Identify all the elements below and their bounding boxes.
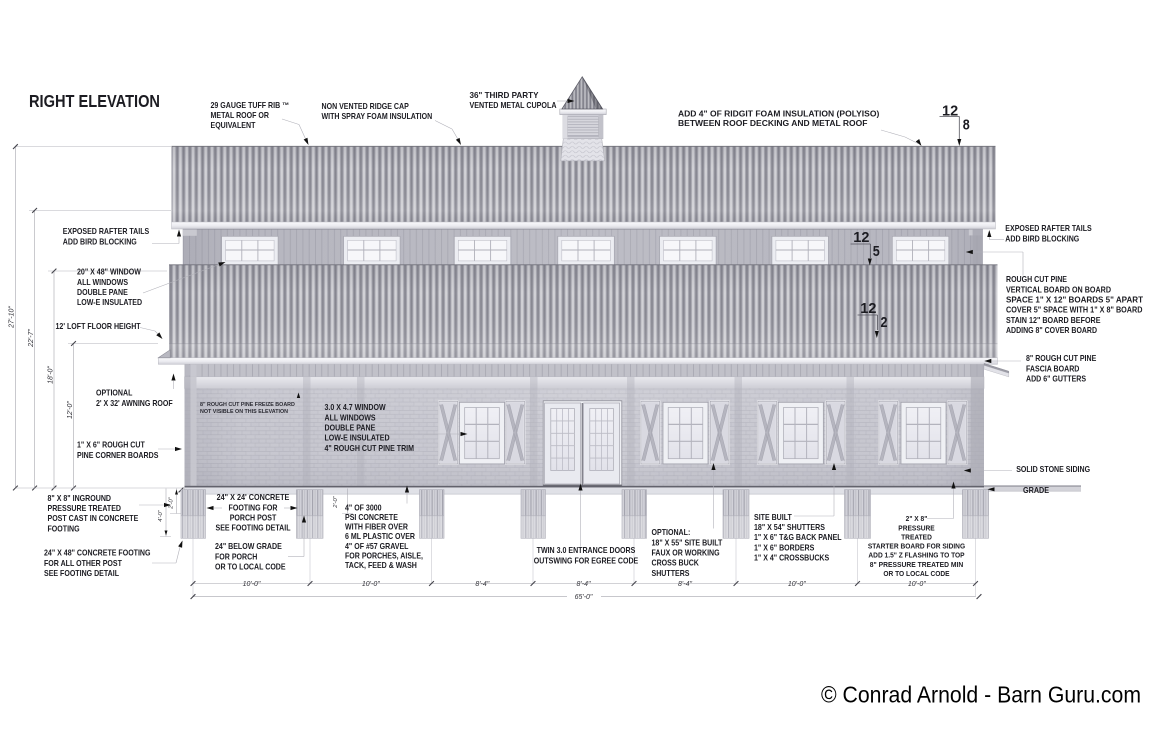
svg-text:8'-4": 8'-4": [475, 581, 489, 588]
svg-text:8" PRESSURE TREATED MIN: 8" PRESSURE TREATED MIN: [870, 560, 963, 569]
svg-text:TWIN 3.0 ENTRANCE DOORS: TWIN 3.0 ENTRANCE DOORS: [537, 546, 636, 555]
svg-text:COVER 5" SPACE WITH 1" X 8" BO: COVER 5" SPACE WITH 1" X 8" BOARD: [1006, 306, 1143, 315]
svg-text:18" X 55" SITE BUILT: 18" X 55" SITE BUILT: [652, 538, 723, 547]
svg-text:OR TO LOCAL CODE: OR TO LOCAL CODE: [883, 569, 949, 578]
svg-text:SEE FOOTING DETAIL: SEE FOOTING DETAIL: [216, 524, 291, 533]
svg-text:ADD 1.5" Z FLASHING TO TOP: ADD 1.5" Z FLASHING TO TOP: [868, 551, 964, 560]
svg-text:POST CAST IN CONCRETE: POST CAST IN CONCRETE: [48, 514, 139, 523]
svg-text:8" ROUGH CUT PINE FREIZE BOARD: 8" ROUGH CUT PINE FREIZE BOARD: [200, 402, 295, 408]
svg-text:© Conrad Arnold - Barn Guru.co: © Conrad Arnold - Barn Guru.com: [821, 682, 1141, 708]
svg-text:FASCIA BOARD: FASCIA BOARD: [1026, 364, 1080, 373]
svg-text:FOOTING: FOOTING: [48, 524, 80, 533]
svg-text:8: 8: [963, 117, 970, 133]
svg-text:24" BELOW GRADE: 24" BELOW GRADE: [215, 542, 282, 551]
svg-text:1" X 4" CROSSBUCKS: 1" X 4" CROSSBUCKS: [754, 554, 830, 563]
svg-text:8" ROUGH CUT PINE: 8" ROUGH CUT PINE: [1026, 354, 1097, 363]
svg-text:PRESSURE: PRESSURE: [898, 523, 934, 532]
svg-text:6 ML PLASTIC OVER: 6 ML PLASTIC OVER: [345, 532, 415, 541]
svg-text:ALL WINDOWS: ALL WINDOWS: [77, 278, 129, 287]
svg-text:4'-0": 4'-0": [158, 509, 164, 521]
svg-text:12'-0": 12'-0": [67, 401, 74, 419]
svg-text:8" X 8" INGROUND: 8" X 8" INGROUND: [48, 494, 112, 503]
svg-text:SOLID STONE SIDING: SOLID STONE SIDING: [1016, 465, 1090, 474]
svg-text:12' LOFT FLOOR HEIGHT: 12' LOFT FLOOR HEIGHT: [56, 322, 141, 331]
svg-text:NON VENTED RIDGE CAP: NON VENTED RIDGE CAP: [322, 102, 410, 111]
svg-text:FOR PORCHES, AISLE,: FOR PORCHES, AISLE,: [345, 551, 423, 560]
svg-text:4" ROUGH CUT PINE TRIM: 4" ROUGH CUT PINE TRIM: [325, 444, 415, 453]
svg-text:LOW-E INSULATED: LOW-E INSULATED: [77, 298, 142, 307]
svg-text:20" X 48" WINDOW: 20" X 48" WINDOW: [77, 268, 141, 277]
svg-text:FAUX OR WORKING: FAUX OR WORKING: [652, 549, 720, 558]
svg-text:1" X 6" BORDERS: 1" X 6" BORDERS: [754, 543, 815, 552]
svg-text:10'-0": 10'-0": [362, 581, 380, 588]
svg-text:NOT VISIBLE ON THIS ELEVATION: NOT VISIBLE ON THIS ELEVATION: [200, 409, 288, 415]
svg-text:PINE CORNER BOARDS: PINE CORNER BOARDS: [77, 451, 159, 460]
svg-text:CROSS BUCK: CROSS BUCK: [652, 559, 700, 568]
svg-text:EXPOSED RAFTER TAILS: EXPOSED RAFTER TAILS: [1005, 224, 1092, 233]
svg-text:PSI CONCRETE: PSI CONCRETE: [345, 513, 398, 522]
svg-text:DOUBLE PANE: DOUBLE PANE: [77, 288, 128, 297]
svg-text:ALL WINDOWS: ALL WINDOWS: [325, 413, 377, 422]
svg-text:BETWEEN ROOF DECKING AND METAL: BETWEEN ROOF DECKING AND METAL ROOF: [678, 118, 868, 128]
svg-text:65'-0": 65'-0": [575, 594, 593, 601]
svg-text:10'-0": 10'-0": [243, 581, 261, 588]
svg-text:12: 12: [860, 301, 876, 317]
svg-text:PORCH POST: PORCH POST: [230, 514, 277, 523]
svg-text:22'-7": 22'-7": [28, 329, 35, 348]
svg-text:TREATED: TREATED: [901, 532, 932, 541]
svg-text:STARTER BOARD FOR SIDING: STARTER BOARD FOR SIDING: [868, 542, 965, 551]
svg-text:ADD 4" OF RIDGIT FOAM INSULATI: ADD 4" OF RIDGIT FOAM INSULATION (POLYIS…: [678, 109, 879, 119]
svg-text:SEE FOOTING DETAIL: SEE FOOTING DETAIL: [44, 569, 119, 578]
svg-text:FOR ALL OTHER POST: FOR ALL OTHER POST: [44, 559, 122, 568]
svg-text:2: 2: [881, 315, 888, 331]
svg-text:ADD BIRD BLOCKING: ADD BIRD BLOCKING: [63, 237, 137, 246]
svg-text:4" OF #57 GRAVEL: 4" OF #57 GRAVEL: [345, 542, 409, 551]
svg-text:PRESSURE TREATED: PRESSURE TREATED: [48, 504, 122, 513]
svg-text:1" X 6" T&G BACK PANEL: 1" X 6" T&G BACK PANEL: [754, 533, 842, 542]
svg-text:WITH FIBER OVER: WITH FIBER OVER: [345, 523, 408, 532]
svg-text:29 GAUGE TUFF RIB ™: 29 GAUGE TUFF RIB ™: [211, 101, 290, 110]
svg-text:2" X 8": 2" X 8": [906, 514, 928, 523]
svg-text:WITH SPRAY FOAM INSULATION: WITH SPRAY FOAM INSULATION: [322, 112, 433, 121]
svg-text:10'-0": 10'-0": [788, 581, 806, 588]
svg-text:GRADE: GRADE: [1023, 485, 1049, 495]
svg-text:LOW-E INSULATED: LOW-E INSULATED: [325, 434, 390, 443]
svg-text:18'-0": 18'-0": [48, 366, 55, 384]
svg-text:EQUIVALENT: EQUIVALENT: [211, 121, 256, 130]
svg-text:2'-0": 2'-0": [333, 495, 339, 508]
svg-text:3.0 X 4.7 WINDOW: 3.0 X 4.7 WINDOW: [325, 403, 386, 412]
svg-text:5: 5: [873, 244, 880, 260]
svg-text:2'-0": 2'-0": [169, 496, 175, 509]
svg-text:ROUGH CUT PINE: ROUGH CUT PINE: [1006, 275, 1068, 284]
svg-text:24" X 48" CONCRETE FOOTING: 24" X 48" CONCRETE FOOTING: [44, 549, 151, 558]
svg-text:EXPOSED RAFTER TAILS: EXPOSED RAFTER TAILS: [63, 227, 150, 236]
svg-text:24" X 24' CONCRETE: 24" X 24' CONCRETE: [217, 493, 290, 502]
svg-text:SPACE 1" X 12" BOARDS 5" APAR: SPACE 1" X 12" BOARDS 5" APART: [1006, 296, 1143, 305]
svg-text:10'-0": 10'-0": [908, 581, 926, 588]
svg-text:8'-4": 8'-4": [678, 581, 692, 588]
svg-text:DOUBLE PANE: DOUBLE PANE: [325, 424, 376, 433]
svg-text:36" THIRD PARTY: 36" THIRD PARTY: [470, 91, 540, 100]
svg-text:8'-4": 8'-4": [577, 581, 591, 588]
svg-text:SITE BUILT: SITE BUILT: [754, 513, 792, 522]
svg-text:FOR PORCH: FOR PORCH: [215, 552, 257, 561]
svg-text:ADD BIRD BLOCKING: ADD BIRD BLOCKING: [1005, 234, 1079, 243]
svg-text:12: 12: [942, 103, 958, 119]
svg-text:27'-10": 27'-10": [9, 306, 16, 329]
svg-text:12: 12: [853, 230, 869, 246]
svg-text:ADD 6" GUTTERS: ADD 6" GUTTERS: [1026, 375, 1087, 384]
svg-text:ADDING 8" COVER BOARD: ADDING 8" COVER BOARD: [1006, 326, 1097, 335]
svg-text:4" OF 3000: 4" OF 3000: [345, 504, 382, 513]
svg-text:FOOTING FOR: FOOTING FOR: [229, 503, 278, 512]
svg-text:1" X 6" ROUGH CUT: 1" X 6" ROUGH CUT: [77, 441, 145, 450]
svg-text:STAIN 12" BOARD BEFORE: STAIN 12" BOARD BEFORE: [1006, 316, 1101, 325]
svg-text:2' X 32' AWNING ROOF: 2' X 32' AWNING ROOF: [96, 399, 173, 408]
svg-text:RIGHT ELEVATION: RIGHT ELEVATION: [29, 91, 160, 111]
svg-text:SHUTTERS: SHUTTERS: [652, 569, 691, 578]
svg-text:OR TO LOCAL CODE: OR TO LOCAL CODE: [215, 563, 286, 572]
svg-text:OPTIONAL: OPTIONAL: [96, 389, 132, 398]
svg-text:VERTICAL BOARD ON BOARD: VERTICAL BOARD ON BOARD: [1006, 285, 1111, 294]
svg-text:TACK, FEED & WASH: TACK, FEED & WASH: [345, 561, 417, 570]
svg-text:VENTED METAL CUPOLA: VENTED METAL CUPOLA: [470, 101, 557, 110]
svg-text:OUTSWING FOR EGREE CODE: OUTSWING FOR EGREE CODE: [534, 556, 639, 565]
svg-text:METAL ROOF OR: METAL ROOF OR: [211, 111, 270, 120]
svg-text:18" X 54" SHUTTERS: 18" X 54" SHUTTERS: [754, 523, 825, 532]
svg-text:OPTIONAL:: OPTIONAL:: [652, 528, 691, 537]
